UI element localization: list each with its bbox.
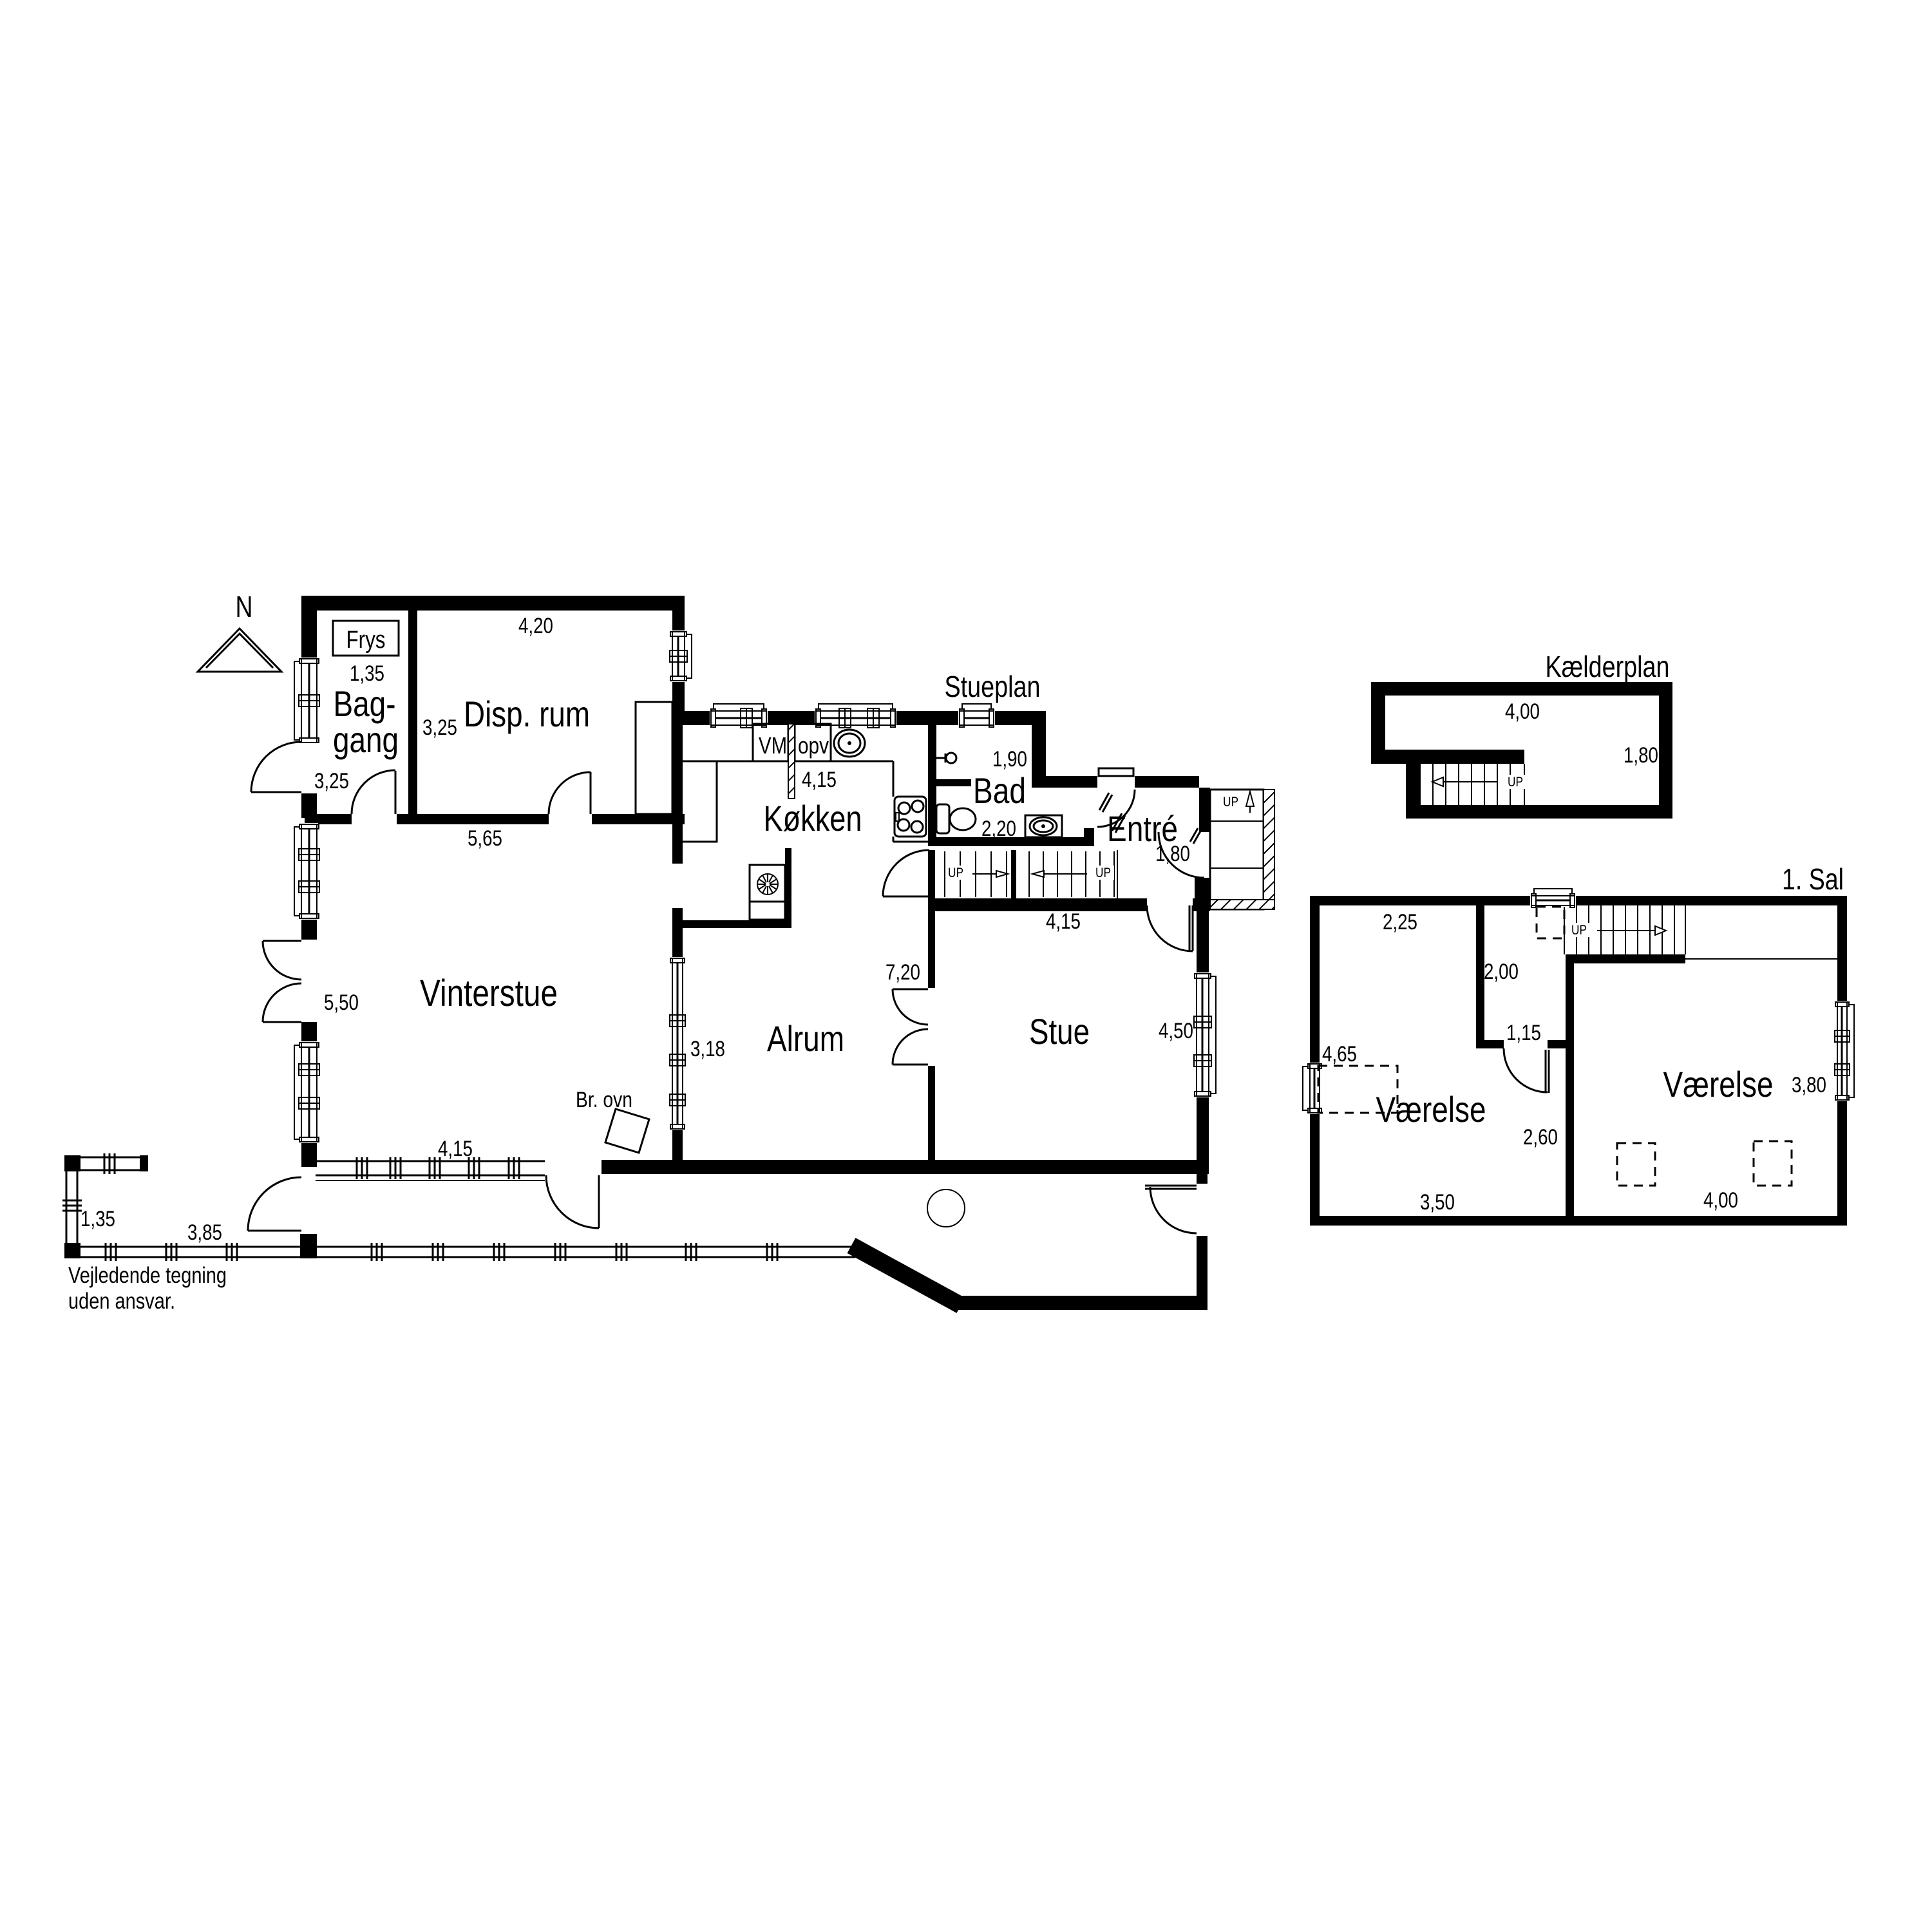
svg-text:1,80: 1,80 (1624, 743, 1658, 768)
svg-text:4,50: 4,50 (1159, 1019, 1193, 1043)
svg-text:Værelse: Værelse (1663, 1064, 1774, 1104)
svg-text:Stueplan: Stueplan (945, 670, 1041, 703)
svg-text:2,25: 2,25 (1383, 910, 1417, 934)
svg-text:Br. ovn: Br. ovn (576, 1088, 632, 1112)
svg-text:UP: UP (1223, 795, 1238, 810)
svg-text:UP: UP (1571, 923, 1587, 938)
svg-text:Disp. rum: Disp. rum (464, 694, 590, 734)
svg-text:3,80: 3,80 (1792, 1073, 1826, 1097)
svg-text:Bad: Bad (973, 770, 1026, 811)
svg-text:5,50: 5,50 (324, 990, 359, 1015)
svg-text:Frys: Frys (346, 627, 386, 654)
svg-text:4,00: 4,00 (1703, 1188, 1738, 1213)
svg-text:UP: UP (1095, 866, 1111, 880)
svg-text:Bag-: Bag- (334, 683, 396, 724)
svg-text:Stue: Stue (1029, 1011, 1090, 1052)
svg-text:N: N (236, 590, 253, 623)
svg-text:Værelse: Værelse (1376, 1089, 1486, 1130)
svg-text:uden ansvar.: uden ansvar. (68, 1289, 175, 1314)
svg-text:7,20: 7,20 (885, 960, 920, 985)
svg-text:2,00: 2,00 (1484, 960, 1519, 984)
svg-text:3,50: 3,50 (1420, 1190, 1455, 1215)
svg-text:gang: gang (333, 719, 399, 760)
svg-text:4,15: 4,15 (438, 1137, 473, 1161)
svg-text:5,65: 5,65 (468, 826, 502, 851)
svg-text:Vejledende tegning: Vejledende tegning (68, 1263, 227, 1288)
svg-text:1,35: 1,35 (350, 661, 384, 686)
svg-text:3,25: 3,25 (422, 715, 457, 740)
svg-text:Vinterstue: Vinterstue (420, 972, 558, 1014)
svg-text:1,80: 1,80 (1155, 842, 1190, 866)
svg-text:2,20: 2,20 (981, 817, 1016, 841)
svg-text:4,15: 4,15 (1046, 909, 1081, 934)
svg-text:UP: UP (948, 866, 963, 880)
svg-text:opv: opv (798, 732, 829, 759)
svg-text:2,60: 2,60 (1523, 1125, 1558, 1150)
svg-text:3,85: 3,85 (187, 1220, 222, 1245)
svg-text:1,15: 1,15 (1506, 1021, 1541, 1045)
svg-text:4,00: 4,00 (1505, 699, 1540, 724)
svg-text:4,15: 4,15 (802, 768, 837, 792)
svg-text:Køkken: Køkken (764, 798, 862, 838)
svg-text:VM: VM (759, 732, 787, 759)
svg-text:1,90: 1,90 (992, 747, 1027, 772)
svg-text:Kælderplan: Kælderplan (1546, 650, 1670, 683)
svg-text:1. Sal: 1. Sal (1782, 862, 1844, 896)
svg-text:1,35: 1,35 (80, 1207, 115, 1231)
svg-text:Alrum: Alrum (767, 1018, 844, 1059)
svg-text:3,25: 3,25 (314, 769, 349, 793)
svg-text:UP: UP (1508, 775, 1523, 790)
svg-text:4,65: 4,65 (1322, 1042, 1357, 1066)
svg-text:4,20: 4,20 (518, 614, 553, 638)
svg-text:3,18: 3,18 (690, 1037, 725, 1061)
